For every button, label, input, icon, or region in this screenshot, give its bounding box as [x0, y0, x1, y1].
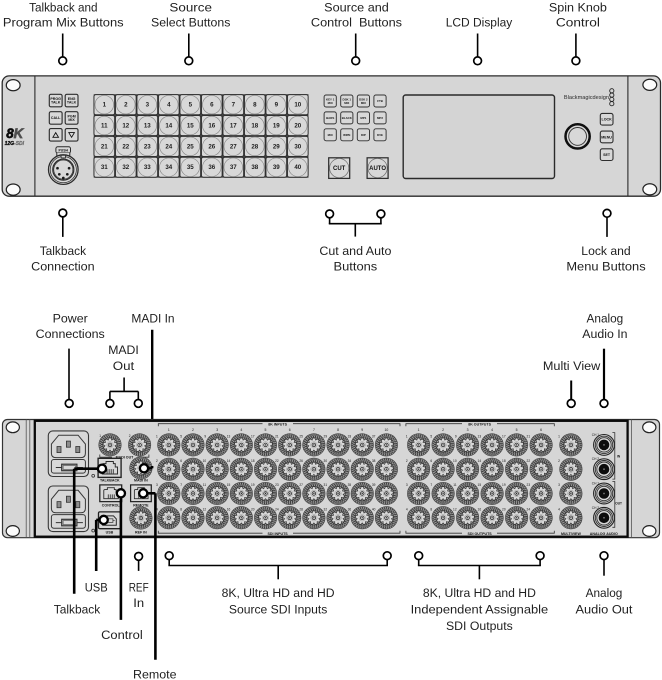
svg-text:Multi View: Multi View — [543, 359, 601, 373]
svg-text:21: 21 — [275, 435, 279, 439]
svg-text:SET: SET — [603, 153, 611, 157]
svg-text:19: 19 — [273, 122, 280, 129]
svg-text:Talkback and: Talkback and — [29, 1, 97, 15]
svg-text:Connections: Connections — [36, 327, 105, 341]
svg-text:Spin Knob: Spin Knob — [549, 1, 607, 15]
svg-text:40: 40 — [294, 164, 301, 171]
svg-text:MP1: MP1 — [360, 116, 366, 120]
svg-text:36: 36 — [348, 507, 352, 511]
svg-text:8K OUTPUTS: 8K OUTPUTS — [468, 422, 491, 426]
svg-text:35: 35 — [348, 483, 352, 487]
svg-text:9: 9 — [204, 435, 206, 439]
svg-text:1: 1 — [418, 428, 420, 432]
svg-text:29: 29 — [324, 435, 328, 439]
svg-text:1: 1 — [168, 428, 170, 432]
svg-text:5: 5 — [265, 428, 267, 432]
svg-text:8K: 8K — [6, 126, 24, 141]
svg-text:Analog: Analog — [586, 586, 623, 600]
svg-text:USB: USB — [85, 580, 108, 594]
svg-text:37: 37 — [372, 435, 376, 439]
svg-text:16: 16 — [227, 507, 231, 511]
svg-text:TALK: TALK — [51, 101, 61, 105]
svg-text:15: 15 — [478, 483, 482, 487]
svg-text:MP2: MP2 — [377, 116, 383, 120]
svg-text:MIX: MIX — [361, 101, 366, 105]
svg-text:18: 18 — [251, 122, 258, 129]
svg-text:6: 6 — [540, 428, 542, 432]
svg-text:Program Mix Buttons: Program Mix Buttons — [3, 15, 124, 29]
svg-text:1: 1 — [558, 435, 560, 439]
svg-text:27: 27 — [299, 483, 303, 487]
svg-text:16: 16 — [208, 122, 215, 129]
svg-text:8K, Ultra HD and HD: 8K, Ultra HD and HD — [222, 586, 335, 600]
svg-text:31: 31 — [324, 483, 328, 487]
svg-text:LCD Display: LCD Display — [446, 15, 513, 29]
svg-text:19: 19 — [251, 483, 255, 487]
svg-text:23: 23 — [275, 483, 279, 487]
svg-text:8K INPUTS: 8K INPUTS — [268, 422, 287, 426]
svg-text:MULTIVIEW: MULTIVIEW — [561, 532, 582, 536]
svg-text:7: 7 — [180, 483, 182, 487]
svg-text:19: 19 — [502, 483, 506, 487]
svg-text:4: 4 — [167, 102, 171, 109]
svg-text:22: 22 — [275, 459, 279, 463]
svg-text:23: 23 — [527, 483, 531, 487]
svg-text:Analog: Analog — [587, 311, 624, 325]
svg-text:6: 6 — [430, 459, 432, 463]
svg-text:13: 13 — [227, 435, 231, 439]
svg-text:14: 14 — [478, 459, 482, 463]
svg-text:14: 14 — [165, 122, 172, 129]
svg-text:DVE: DVE — [377, 133, 383, 137]
svg-text:11: 11 — [101, 122, 108, 129]
svg-text:25: 25 — [187, 143, 194, 150]
svg-text:3: 3 — [216, 428, 218, 432]
svg-text:39: 39 — [372, 483, 376, 487]
svg-text:29: 29 — [273, 143, 280, 150]
svg-text:38: 38 — [251, 164, 258, 171]
svg-text:20: 20 — [294, 122, 301, 129]
svg-text:26: 26 — [208, 143, 215, 150]
svg-text:MIX: MIX — [68, 118, 75, 122]
svg-text:Source: Source — [169, 1, 212, 15]
svg-text:Out: Out — [113, 359, 135, 373]
svg-text:22: 22 — [527, 459, 531, 463]
svg-text:33: 33 — [144, 164, 151, 171]
svg-text:Select Buttons: Select Buttons — [151, 15, 230, 29]
svg-text:3: 3 — [467, 428, 469, 432]
svg-text:CH 1: CH 1 — [592, 433, 599, 437]
svg-text:24: 24 — [165, 143, 172, 150]
svg-text:34: 34 — [165, 164, 172, 171]
svg-text:CALL: CALL — [51, 116, 61, 120]
svg-text:32: 32 — [122, 164, 129, 171]
svg-text:BLACK: BLACK — [342, 116, 353, 120]
svg-text:1: 1 — [99, 434, 101, 438]
svg-text:Control: Control — [101, 628, 143, 642]
svg-text:MADI In: MADI In — [131, 311, 174, 325]
svg-text:12: 12 — [453, 507, 457, 511]
svg-text:8: 8 — [180, 507, 182, 511]
svg-text:2: 2 — [124, 102, 128, 109]
svg-text:Source SDI Inputs: Source SDI Inputs — [229, 602, 328, 616]
svg-text:3: 3 — [146, 102, 150, 109]
svg-text:8K, Ultra HD and HD: 8K, Ultra HD and HD — [423, 586, 536, 600]
svg-text:MADI: MADI — [108, 343, 139, 357]
svg-text:CH 2: CH 2 — [592, 506, 599, 510]
svg-text:9: 9 — [361, 428, 363, 432]
svg-text:20: 20 — [502, 507, 506, 511]
svg-text:10: 10 — [294, 102, 301, 109]
svg-text:3: 3 — [406, 483, 408, 487]
svg-text:33: 33 — [348, 435, 352, 439]
svg-text:17: 17 — [502, 435, 506, 439]
svg-text:17: 17 — [230, 122, 237, 129]
svg-text:7: 7 — [430, 483, 432, 487]
svg-text:USB: USB — [106, 531, 114, 535]
svg-text:24: 24 — [527, 507, 531, 511]
svg-text:12: 12 — [122, 122, 129, 129]
svg-text:18: 18 — [251, 459, 255, 463]
svg-text:28: 28 — [251, 143, 258, 150]
svg-text:32: 32 — [324, 507, 328, 511]
svg-text:SDI Outputs: SDI Outputs — [446, 619, 513, 633]
svg-text:37: 37 — [230, 164, 237, 171]
svg-text:Cut and Auto: Cut and Auto — [319, 244, 391, 258]
svg-text:Control: Control — [556, 15, 600, 29]
svg-text:Audio In: Audio In — [582, 327, 627, 341]
svg-text:21: 21 — [527, 435, 531, 439]
svg-text:16: 16 — [478, 507, 482, 511]
svg-text:TALK: TALK — [67, 101, 77, 105]
svg-text:MIX: MIX — [344, 101, 349, 105]
svg-text:4: 4 — [491, 428, 493, 432]
svg-text:WIPE: WIPE — [343, 133, 350, 137]
svg-text:20: 20 — [251, 507, 255, 511]
svg-text:15: 15 — [187, 122, 194, 129]
svg-text:2: 2 — [558, 459, 560, 463]
svg-text:31: 31 — [101, 164, 108, 171]
svg-text:30: 30 — [294, 143, 301, 150]
svg-text:11: 11 — [453, 483, 457, 487]
svg-text:4: 4 — [240, 428, 242, 432]
svg-text:CONTROL: CONTROL — [102, 504, 121, 508]
svg-text:10: 10 — [453, 459, 457, 463]
svg-text:34: 34 — [348, 459, 352, 463]
svg-text:Source and: Source and — [324, 1, 389, 15]
svg-text:9: 9 — [275, 102, 279, 109]
svg-text:18: 18 — [502, 459, 506, 463]
svg-text:4: 4 — [558, 507, 560, 511]
svg-text:6: 6 — [180, 459, 182, 463]
svg-text:ANALOG AUDIO: ANALOG AUDIO — [590, 532, 618, 536]
svg-text:23: 23 — [144, 143, 151, 150]
svg-text:PUSH: PUSH — [58, 148, 68, 152]
svg-text:CUT: CUT — [333, 166, 346, 172]
svg-text:9: 9 — [455, 435, 457, 439]
svg-text:8: 8 — [253, 102, 257, 109]
svg-text:Control Buttons: Control Buttons — [311, 15, 402, 29]
svg-text:SDI OUTPUTS: SDI OUTPUTS — [468, 532, 493, 536]
svg-text:39: 39 — [273, 164, 280, 171]
svg-text:4: 4 — [406, 507, 408, 511]
svg-text:8: 8 — [337, 428, 339, 432]
svg-text:2: 2 — [406, 459, 408, 463]
svg-text:38: 38 — [372, 459, 376, 463]
svg-text:Buttons: Buttons — [334, 260, 378, 274]
svg-text:1: 1 — [406, 435, 408, 439]
svg-text:REF: REF — [129, 580, 149, 594]
svg-text:26: 26 — [299, 459, 303, 463]
svg-text:2: 2 — [129, 434, 131, 438]
svg-text:10: 10 — [203, 459, 207, 463]
svg-text:3: 3 — [156, 483, 158, 487]
svg-text:MADI IN: MADI IN — [134, 479, 148, 483]
svg-text:5: 5 — [180, 435, 182, 439]
svg-text:3: 3 — [558, 483, 560, 487]
svg-text:MIX: MIX — [328, 133, 333, 137]
svg-text:7: 7 — [313, 428, 315, 432]
svg-text:OUT: OUT — [615, 501, 622, 505]
svg-text:28: 28 — [299, 507, 303, 511]
svg-text:36: 36 — [208, 164, 215, 171]
svg-text:Independent Assignable: Independent Assignable — [411, 602, 549, 616]
svg-text:CH 1: CH 1 — [592, 482, 599, 486]
svg-text:2: 2 — [192, 428, 194, 432]
svg-text:LOCK: LOCK — [602, 118, 613, 122]
svg-text:13: 13 — [478, 435, 482, 439]
svg-text:1: 1 — [156, 435, 158, 439]
svg-text:10: 10 — [385, 428, 389, 432]
svg-text:12: 12 — [203, 507, 207, 511]
svg-text:5: 5 — [430, 435, 432, 439]
svg-text:FTB: FTB — [377, 99, 383, 103]
svg-text:2: 2 — [156, 459, 158, 463]
svg-text:TALKBACK: TALKBACK — [100, 479, 120, 483]
svg-text:Power: Power — [53, 311, 88, 325]
svg-text:15: 15 — [227, 483, 231, 487]
svg-text:21: 21 — [101, 143, 108, 150]
svg-text:30: 30 — [324, 459, 328, 463]
svg-text:27: 27 — [230, 143, 237, 150]
svg-text:40: 40 — [372, 507, 376, 511]
svg-text:17: 17 — [251, 435, 255, 439]
svg-text:12G-SDI: 12G-SDI — [5, 141, 25, 147]
svg-text:13: 13 — [144, 122, 151, 129]
svg-text:Lock and: Lock and — [581, 244, 630, 258]
svg-text:5: 5 — [189, 102, 193, 109]
svg-text:SDI INPUTS: SDI INPUTS — [268, 532, 289, 536]
svg-text:DIP: DIP — [361, 133, 366, 137]
svg-text:Connection: Connection — [31, 260, 95, 274]
svg-text:14: 14 — [227, 459, 231, 463]
svg-text:11: 11 — [203, 483, 207, 487]
svg-text:Talkback: Talkback — [40, 244, 87, 258]
svg-text:8: 8 — [430, 507, 432, 511]
svg-text:CH 2: CH 2 — [592, 457, 599, 461]
svg-text:In: In — [133, 596, 144, 610]
svg-text:35: 35 — [187, 164, 194, 171]
svg-text:1: 1 — [103, 102, 107, 109]
svg-text:22: 22 — [122, 143, 129, 150]
svg-text:Blackmagicdesign: Blackmagicdesign — [564, 95, 609, 101]
svg-text:24: 24 — [275, 507, 279, 511]
svg-text:25: 25 — [299, 435, 303, 439]
svg-text:5: 5 — [516, 428, 518, 432]
svg-text:Audio Out: Audio Out — [576, 602, 634, 616]
svg-text:MENU: MENU — [601, 135, 612, 139]
svg-text:6: 6 — [210, 102, 214, 109]
svg-text:BARS: BARS — [326, 116, 334, 120]
svg-text:6: 6 — [289, 428, 291, 432]
svg-text:MIX: MIX — [328, 101, 333, 105]
svg-text:Talkback: Talkback — [54, 602, 101, 616]
svg-text:REF IN: REF IN — [135, 531, 147, 535]
svg-text:7: 7 — [232, 102, 236, 109]
svg-text:Remote: Remote — [133, 668, 177, 680]
svg-text:Menu Buttons: Menu Buttons — [566, 260, 645, 274]
svg-text:2: 2 — [442, 428, 444, 432]
svg-text:AUTO: AUTO — [369, 166, 386, 172]
